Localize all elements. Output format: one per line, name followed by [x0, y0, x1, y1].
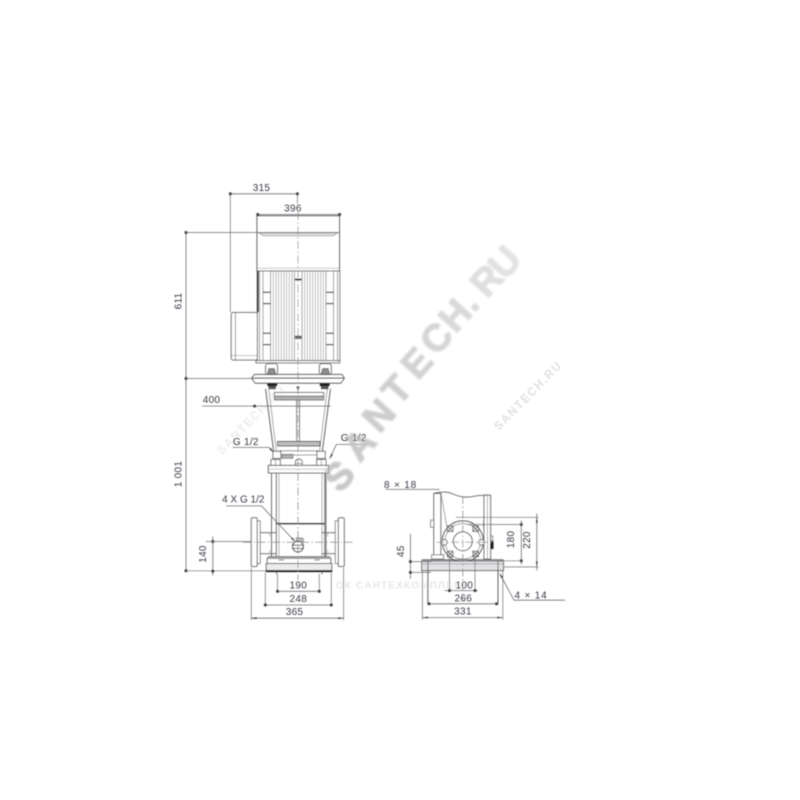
- svg-text:190: 190: [290, 580, 308, 591]
- svg-text:4 X G 1/2: 4 X G 1/2: [222, 495, 265, 506]
- svg-text:ОК САНТЕХКОМПЛЕКТ: ОК САНТЕХКОМПЛЕКТ: [336, 581, 469, 592]
- svg-text:266: 266: [455, 594, 473, 605]
- svg-text:180: 180: [506, 530, 517, 548]
- svg-text:365: 365: [286, 607, 304, 618]
- svg-text:140: 140: [198, 545, 209, 563]
- svg-text:220: 220: [522, 531, 533, 549]
- svg-text:331: 331: [454, 606, 472, 617]
- svg-text:396: 396: [284, 204, 302, 215]
- svg-text:248: 248: [290, 594, 308, 605]
- svg-text:611: 611: [174, 292, 185, 309]
- svg-text:4 × 14: 4 × 14: [515, 590, 548, 601]
- svg-text:1 001: 1 001: [174, 461, 185, 488]
- svg-text:400: 400: [203, 395, 221, 406]
- svg-text:45: 45: [396, 545, 407, 557]
- svg-text:315: 315: [253, 183, 271, 194]
